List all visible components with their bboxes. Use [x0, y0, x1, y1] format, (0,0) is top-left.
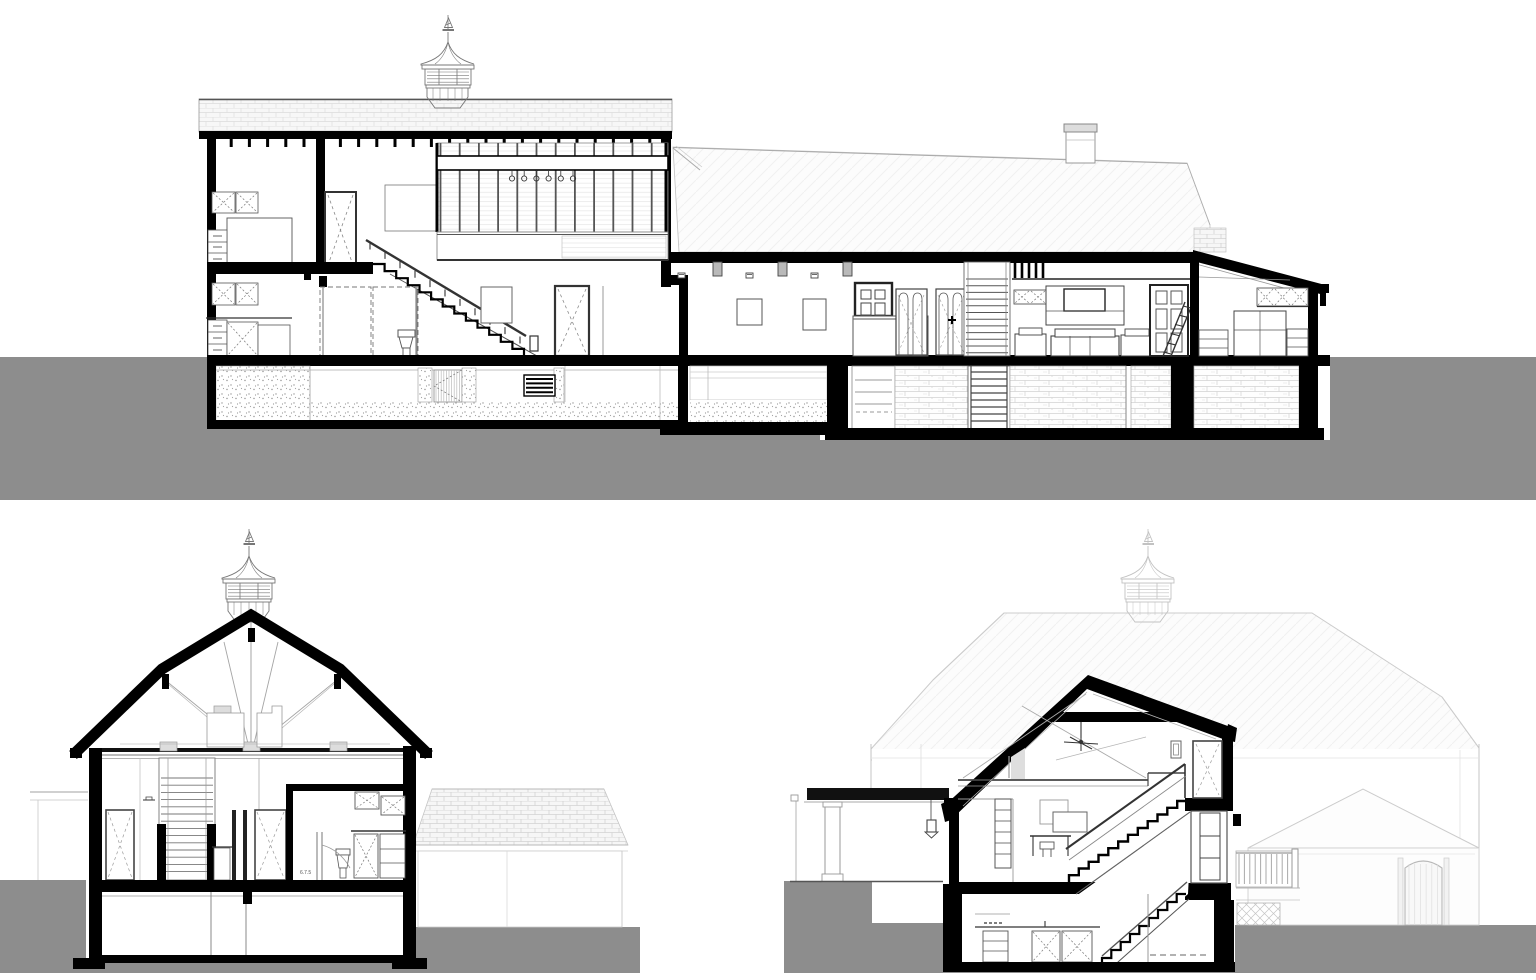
- svg-text:6.7.5: 6.7.5: [300, 870, 311, 876]
